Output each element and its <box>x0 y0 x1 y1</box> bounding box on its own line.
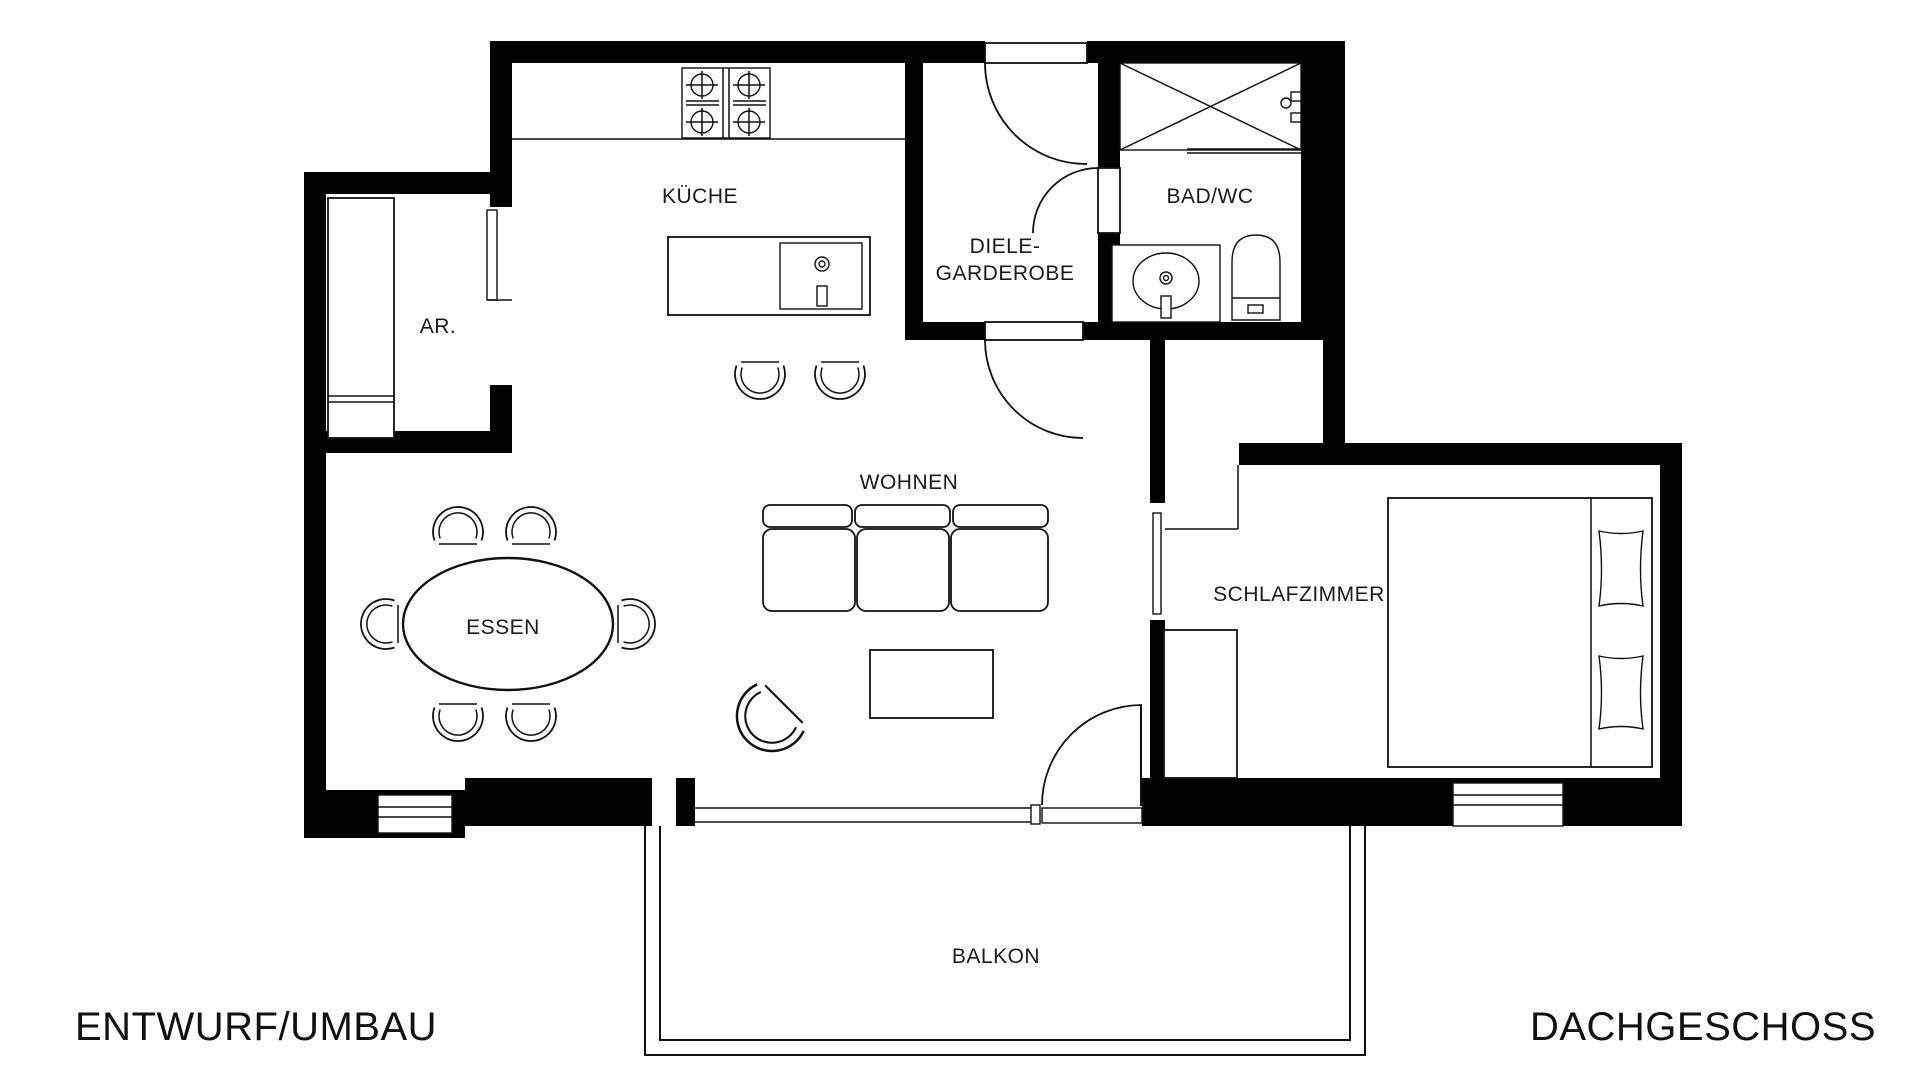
bath-label: BAD/WC <box>1167 185 1254 208</box>
wall-step-bedroom <box>1323 41 1345 465</box>
bedroom-window <box>1453 783 1563 826</box>
bedroom-sliding-door <box>1153 513 1161 614</box>
entrance-door <box>985 43 1087 164</box>
closet <box>328 198 394 438</box>
wall-kitchen-left <box>490 41 512 207</box>
dining-window <box>378 795 452 833</box>
storage-furniture <box>328 198 394 438</box>
wall-storage-top <box>304 172 512 194</box>
wall-bath-right <box>1301 63 1323 340</box>
floor-plan-drawing: KÜCHE AR. DIELE- GARDEROBE BAD/WC WOHNEN… <box>0 0 1920 1080</box>
wall-top-left <box>490 41 985 63</box>
hall-living-door <box>985 322 1083 438</box>
dining-chair <box>506 704 556 741</box>
plan-title-left: ENTWURF/UMBAU <box>75 1005 437 1049</box>
wall-hall-bath-upper <box>1098 63 1120 168</box>
wall-corridor-lower <box>1150 620 1165 778</box>
balcony-label: BALKON <box>952 945 1040 968</box>
bedroom-label: SCHLAFZIMMER <box>1213 583 1385 606</box>
bar-stool <box>815 362 865 399</box>
dining-chair <box>361 599 398 649</box>
dining-chair <box>618 599 655 649</box>
stove <box>682 68 770 138</box>
bar-stool <box>735 362 785 399</box>
hall-label-line2: GARDEROBE <box>936 262 1075 285</box>
dining-chair <box>506 507 556 544</box>
wall-corridor-upper <box>1150 340 1165 503</box>
wardrobe <box>1164 630 1237 778</box>
wall-bottom-pillar <box>465 778 652 826</box>
kitchen-island <box>668 237 870 315</box>
wall-kitchen-hall <box>905 63 923 340</box>
dining-label: ESSEN <box>466 616 540 639</box>
vanity-sink <box>1112 245 1220 322</box>
wall-bottom-post <box>676 778 695 826</box>
dining-chair <box>433 507 483 544</box>
balcony-railing <box>645 826 1365 1055</box>
bedroom-furniture <box>1164 465 1652 778</box>
living-window-band <box>695 805 1040 824</box>
doors <box>985 43 1161 806</box>
double-bed <box>1388 498 1652 767</box>
pillow <box>1599 531 1643 606</box>
wall-hall-bottom-left <box>905 322 985 340</box>
living-furniture <box>722 505 1048 766</box>
floor-plan-canvas: KÜCHE AR. DIELE- GARDEROBE BAD/WC WOHNEN… <box>0 0 1920 1080</box>
living-label: WOHNEN <box>860 471 959 494</box>
wall-top-right <box>1087 41 1345 63</box>
sofa <box>763 505 1048 611</box>
coffee-table <box>870 650 993 718</box>
wall-bedroom-top <box>1239 443 1682 465</box>
pillow <box>1599 656 1643 729</box>
kitchen-label: KÜCHE <box>662 185 738 208</box>
storage-doorway <box>487 210 512 300</box>
bath-door <box>1033 168 1120 233</box>
armchair <box>722 679 808 765</box>
shower <box>1120 63 1301 153</box>
kitchen-furniture <box>512 68 905 399</box>
plan-title-right: DACHGESCHOSS <box>1530 1005 1876 1049</box>
balcony-door <box>1042 705 1142 806</box>
wall-right <box>1660 443 1682 826</box>
toilet <box>1232 235 1280 320</box>
wall-left <box>304 172 326 838</box>
storage-label: AR. <box>420 315 457 338</box>
dining-chair <box>433 704 483 741</box>
wall-bottom-bedroom <box>1142 778 1682 826</box>
hall-label-line1: DIELE- <box>970 235 1041 258</box>
alcove-lines <box>1165 465 1238 529</box>
balcony-door-threshold <box>1042 808 1142 823</box>
